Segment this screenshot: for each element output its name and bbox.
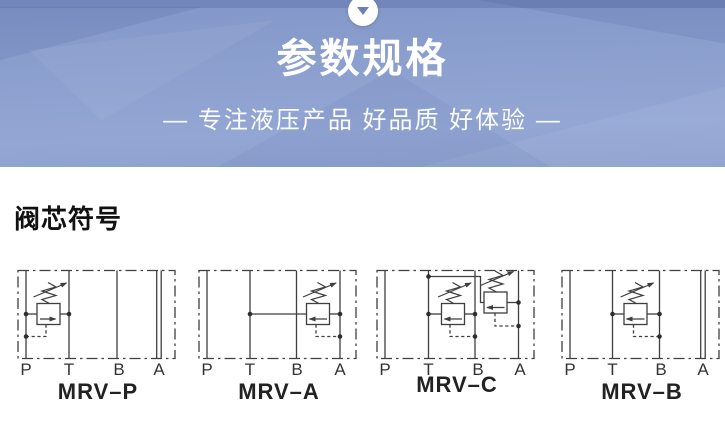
pilot-line — [26, 325, 46, 337]
subplate-boundary — [18, 271, 175, 359]
port-label: B — [113, 360, 124, 379]
port-label: P — [379, 360, 390, 379]
pilot-line — [450, 325, 475, 337]
pilot-line — [634, 325, 660, 337]
section-title: 阀芯符号 — [14, 204, 725, 235]
relief-valve-symbol — [610, 283, 662, 339]
valve-schematic-mrv-b: P T B A — [560, 261, 724, 379]
diagram-caption: MRV–A — [197, 381, 361, 403]
banner: 参数规格 — 专注液压产品 好品质 好体验 — — [0, 0, 725, 167]
valve-schematic-mrv-a: P T B A — [197, 261, 361, 379]
relief-valve-symbol — [24, 283, 72, 339]
relief-valve-symbol-a — [426, 271, 521, 328]
pilot-line — [316, 325, 340, 337]
diagram-caption: MRV–P — [16, 381, 180, 403]
diagram-caption: MRV–B — [560, 381, 724, 403]
banner-title: 参数规格 — [0, 38, 725, 80]
port-label: P — [201, 360, 212, 379]
relief-valve-symbol-b — [426, 283, 477, 339]
product-spec-page: 参数规格 — 专注液压产品 好品质 好体验 — 阀芯符号 — [0, 0, 725, 446]
port-label: T — [64, 360, 74, 379]
relief-valve-symbol — [248, 283, 343, 339]
port-label: A — [334, 360, 346, 379]
pilot-line — [495, 313, 519, 326]
valve-diagram-mrv-c: P T B A MRV–C — [375, 261, 539, 396]
banner-subtitle: — 专注液压产品 好品质 好体验 — — [0, 107, 725, 136]
valve-schematic-mrv-p: P T B A — [16, 261, 180, 379]
valve-schematic-mrv-c: P T B A — [375, 261, 539, 379]
valve-diagram-mrv-p: P T B A MRV–P — [16, 261, 180, 403]
valve-diagram-mrv-a: P T B A MRV–A — [197, 261, 361, 403]
port-label: P — [564, 360, 575, 379]
port-label: T — [607, 360, 617, 379]
valve-diagram-mrv-b: P T B A MRV–B — [560, 261, 724, 403]
port-label: P — [20, 360, 31, 379]
port-label: A — [514, 360, 526, 379]
port-label: A — [153, 360, 165, 379]
port-label: A — [697, 360, 709, 379]
scroll-indicator-badge — [348, 0, 378, 26]
subplate-boundary — [562, 271, 719, 359]
port-label: T — [245, 360, 255, 379]
valve-diagram-row: P T B A MRV–P — [0, 261, 725, 403]
chevron-down-icon — [357, 7, 369, 15]
port-label: B — [655, 360, 666, 379]
port-label: B — [291, 360, 302, 379]
